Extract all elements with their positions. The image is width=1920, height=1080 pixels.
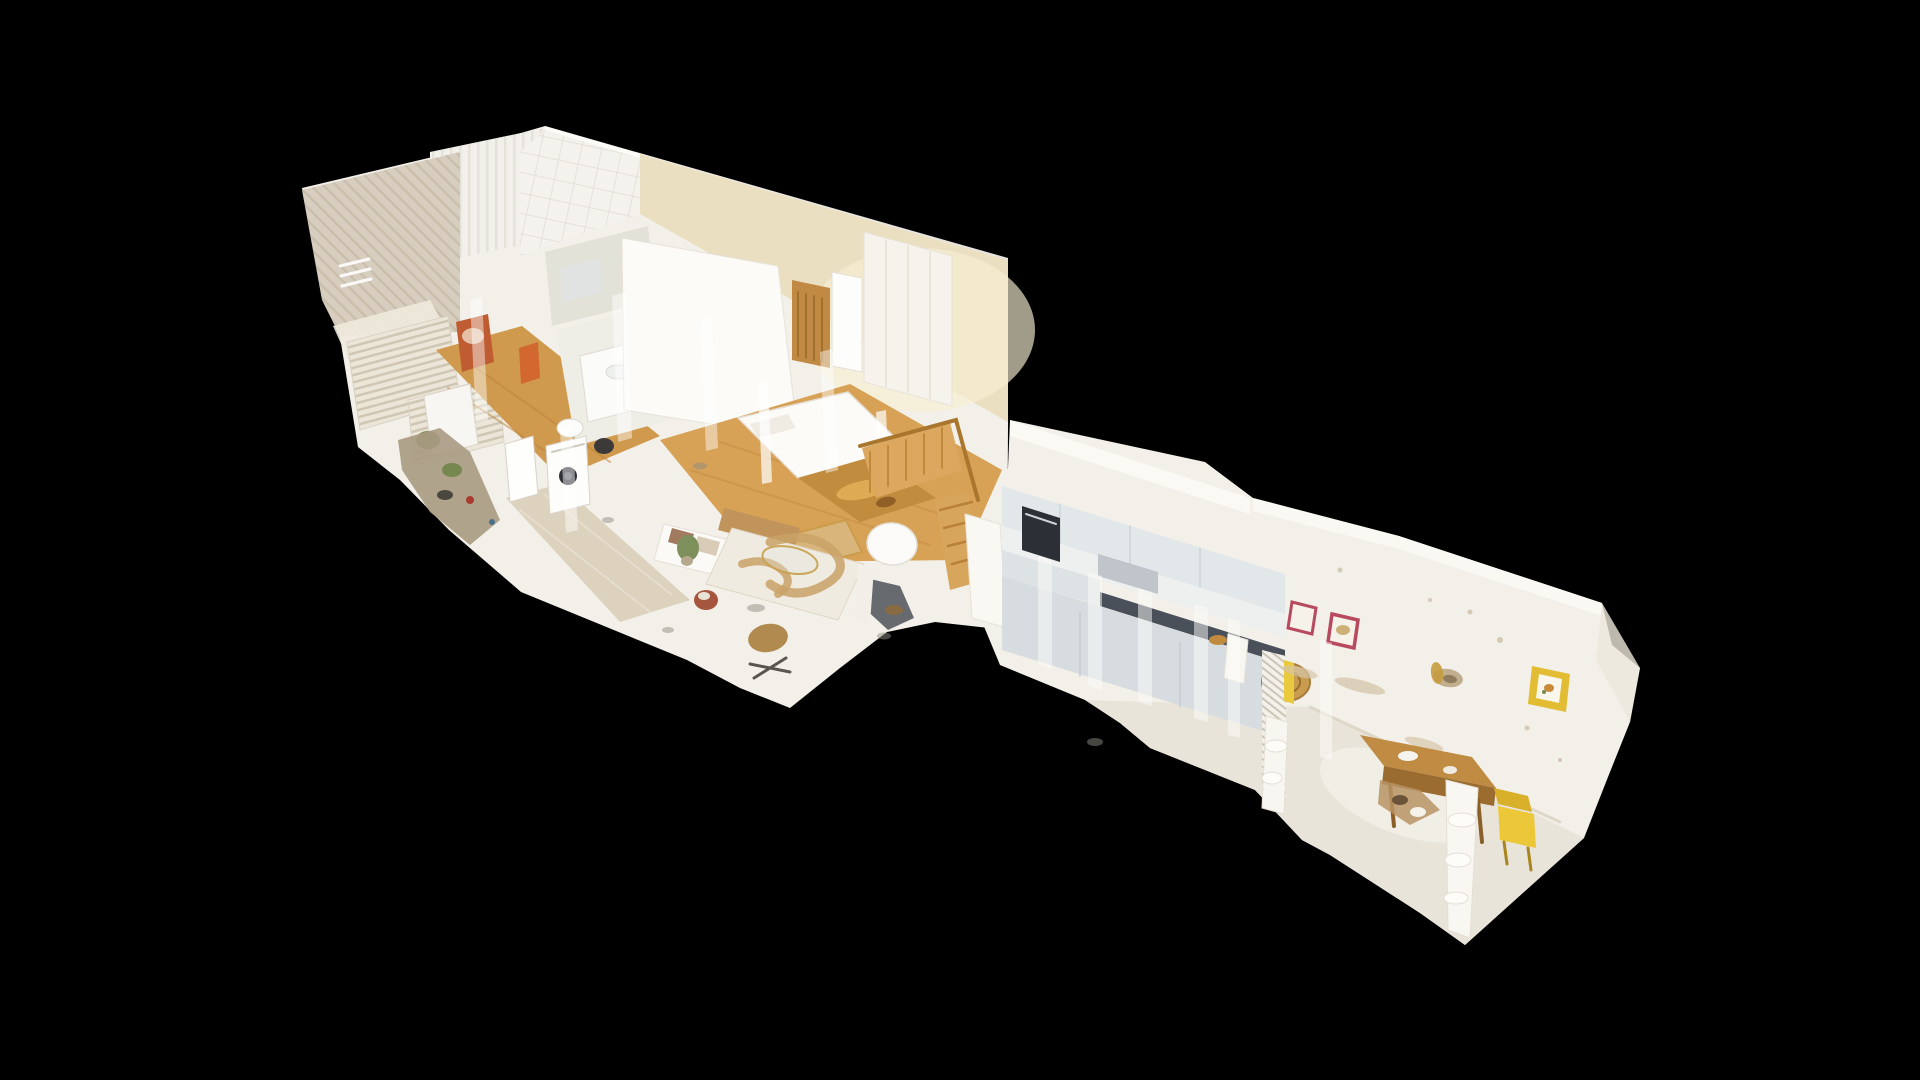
floor-spot-4 bbox=[877, 633, 891, 640]
wall-dot-4 bbox=[1558, 758, 1562, 762]
kitchen-ghost-3 bbox=[1138, 588, 1152, 706]
floor-spot-2 bbox=[747, 604, 765, 612]
clutter-blue bbox=[489, 519, 495, 525]
wall-dot-5 bbox=[1338, 568, 1343, 573]
laundry-bag bbox=[594, 438, 614, 454]
knobby-column-1 bbox=[1262, 716, 1288, 814]
clutter-red bbox=[466, 496, 474, 504]
dollhouse-3d-view[interactable] bbox=[0, 0, 1920, 1080]
under-table-white bbox=[1410, 807, 1426, 817]
orange-cabinet bbox=[519, 342, 540, 384]
pouf-top bbox=[698, 592, 710, 600]
wall-dot-1 bbox=[1497, 637, 1503, 643]
frame2-art bbox=[1336, 625, 1350, 635]
stair-nook-pillar bbox=[965, 514, 1007, 628]
frame-art-2 bbox=[1542, 690, 1546, 694]
counter-items bbox=[1209, 635, 1227, 645]
floor-spot-1 bbox=[693, 463, 707, 470]
kitchen-ghost-1 bbox=[1038, 556, 1052, 668]
knob-1b bbox=[1262, 772, 1282, 784]
dining-ghost-2 bbox=[1228, 618, 1240, 738]
clutter-dark bbox=[437, 490, 453, 500]
clutter-green bbox=[442, 463, 462, 477]
knob-2b bbox=[1445, 853, 1471, 867]
wall-dot-3 bbox=[1525, 726, 1530, 731]
bedroom-door bbox=[832, 272, 862, 372]
wall-dot-6 bbox=[1428, 598, 1432, 602]
clutter-brown bbox=[885, 605, 903, 615]
plant-pot bbox=[681, 556, 693, 566]
kitchen-ghost-4 bbox=[1194, 604, 1208, 722]
table-items-2 bbox=[1443, 766, 1457, 774]
wall-dot-2 bbox=[1468, 610, 1473, 615]
knob-2a bbox=[1448, 813, 1476, 827]
table-items-1 bbox=[1398, 751, 1418, 761]
floor-spot-5 bbox=[1087, 738, 1103, 746]
pink-frame-1 bbox=[1288, 602, 1316, 634]
knob-1a bbox=[1265, 740, 1287, 752]
knob-2c bbox=[1444, 892, 1468, 904]
under-table-dark bbox=[1392, 795, 1408, 805]
corridor-door bbox=[505, 436, 538, 502]
viewer-canvas bbox=[0, 0, 1920, 1080]
floor-spot-6 bbox=[602, 517, 614, 523]
floor-spot-3 bbox=[662, 627, 674, 633]
dining-ghost-1 bbox=[1320, 640, 1332, 760]
kitchen-ghost-2 bbox=[1088, 572, 1102, 690]
